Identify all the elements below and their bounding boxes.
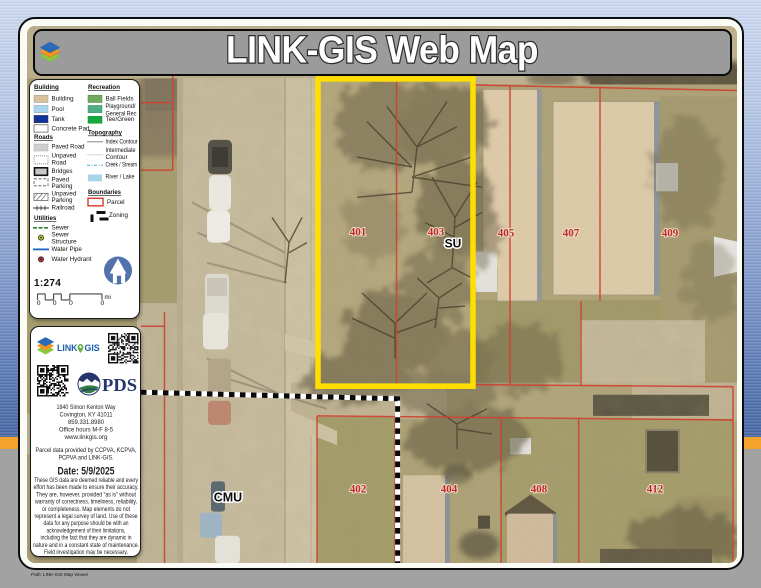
svg-text:PDS: PDS: [102, 375, 137, 395]
svg-text:Contour: Contour: [106, 154, 128, 161]
svg-text:Recreation: Recreation: [88, 84, 120, 91]
svg-text:405: 405: [498, 228, 515, 240]
svg-text:CMU: CMU: [214, 491, 242, 505]
svg-text:404: 404: [441, 483, 458, 495]
svg-text:GIS: GIS: [85, 343, 100, 353]
svg-text:effort has been made to ensure: effort has been made to ensure their acc…: [34, 484, 139, 491]
svg-text:Covington, KY 41011: Covington, KY 41011: [60, 412, 113, 419]
svg-text:Utilities: Utilities: [34, 215, 57, 222]
svg-text:or completeness. Map elements: or completeness. Map elements do not: [42, 506, 130, 513]
svg-text:0: 0: [53, 300, 57, 307]
svg-text:Zoning: Zoning: [109, 212, 128, 219]
svg-text:Creek / Stream: Creek / Stream: [106, 161, 138, 168]
svg-text:Railroad: Railroad: [52, 205, 76, 212]
svg-text:nature and in a constant state: nature and in a constant state of mainte…: [33, 542, 139, 549]
svg-text:Water Hydrant: Water Hydrant: [52, 256, 92, 263]
svg-text:Office hours M-F 8-5: Office hours M-F 8-5: [59, 427, 113, 434]
svg-text:402: 402: [350, 483, 367, 495]
svg-text:Index Contour: Index Contour: [106, 139, 138, 146]
svg-text:Playground/: Playground/: [106, 103, 136, 110]
svg-text:Pool: Pool: [52, 106, 64, 113]
svg-text:0: 0: [37, 300, 41, 307]
svg-text:Topography: Topography: [88, 130, 123, 137]
svg-text:Parcel data provided by CCPVA,: Parcel data provided by CCPVA, KCPVA,: [36, 447, 137, 454]
svg-text:Structure: Structure: [52, 238, 78, 245]
svg-text:Water Pipe: Water Pipe: [52, 246, 83, 253]
svg-text:Date: 5/9/2025: Date: 5/9/2025: [58, 466, 115, 478]
svg-text:412: 412: [647, 483, 664, 495]
svg-text:Building: Building: [52, 96, 75, 103]
svg-text:Boundaries: Boundaries: [88, 189, 122, 196]
svg-text:401: 401: [350, 227, 366, 239]
svg-text:1840 Simon Kenton Way: 1840 Simon Kenton Way: [57, 404, 116, 411]
svg-text:408: 408: [531, 483, 548, 495]
svg-text:Field investigation may be nec: Field investigation may be necessary.: [44, 549, 128, 555]
svg-text:including the fact that they a: including the fact that they are dynamic…: [41, 535, 132, 542]
svg-text:River / Lake: River / Lake: [106, 174, 135, 181]
svg-text:Parking: Parking: [52, 197, 74, 204]
svg-text:407: 407: [563, 228, 580, 240]
svg-text:409: 409: [662, 228, 679, 240]
svg-text:Road: Road: [52, 160, 67, 167]
svg-text:1:274: 1:274: [34, 278, 61, 289]
svg-text:0: 0: [69, 300, 73, 307]
svg-text:warranty of correctness, timel: warranty of correctness, timeliness, rel…: [34, 499, 137, 506]
svg-text:Paved Road: Paved Road: [52, 144, 86, 151]
svg-text:acknowledgement of their limit: acknowledgement of their limitations,: [47, 527, 126, 534]
svg-text:Sewer: Sewer: [52, 225, 70, 232]
svg-text:Ball Fields: Ball Fields: [106, 96, 134, 103]
svg-text:403: 403: [428, 227, 445, 239]
svg-text:SU: SU: [445, 237, 462, 251]
svg-text:Building: Building: [34, 84, 59, 91]
svg-text:Tank: Tank: [52, 116, 66, 123]
svg-text:Concrete Pad: Concrete Pad: [52, 126, 91, 133]
svg-text:data for any purpose should be: data for any purpose should be with an: [44, 520, 129, 527]
svg-text:LINK: LINK: [57, 343, 78, 353]
svg-text:859.331.8980: 859.331.8980: [68, 419, 104, 426]
svg-text:represent a legal survey of la: represent a legal survey of land. Use of…: [35, 513, 139, 520]
svg-text:They are, however, provided “a: They are, however, provided “as is” with…: [36, 491, 136, 498]
svg-text:LINK-GIS Web Map: LINK-GIS Web Map: [226, 30, 538, 72]
svg-text:Parking: Parking: [52, 183, 74, 190]
svg-text:Roads: Roads: [34, 134, 53, 141]
svg-text:mi: mi: [105, 295, 111, 301]
svg-text:Parcel: Parcel: [107, 199, 125, 206]
svg-text:www.linkgis.org: www.linkgis.org: [64, 434, 108, 441]
svg-text:Bridges: Bridges: [52, 168, 73, 175]
svg-text:These GIS data are deemed reli: These GIS data are deemed reliable and e…: [34, 477, 139, 484]
svg-text:PCPVA and LINK-GIS.: PCPVA and LINK-GIS.: [59, 455, 114, 462]
svg-text:Unpaved: Unpaved: [52, 153, 77, 160]
svg-text:Tee/Green: Tee/Green: [106, 116, 135, 123]
svg-text:0: 0: [101, 300, 105, 307]
